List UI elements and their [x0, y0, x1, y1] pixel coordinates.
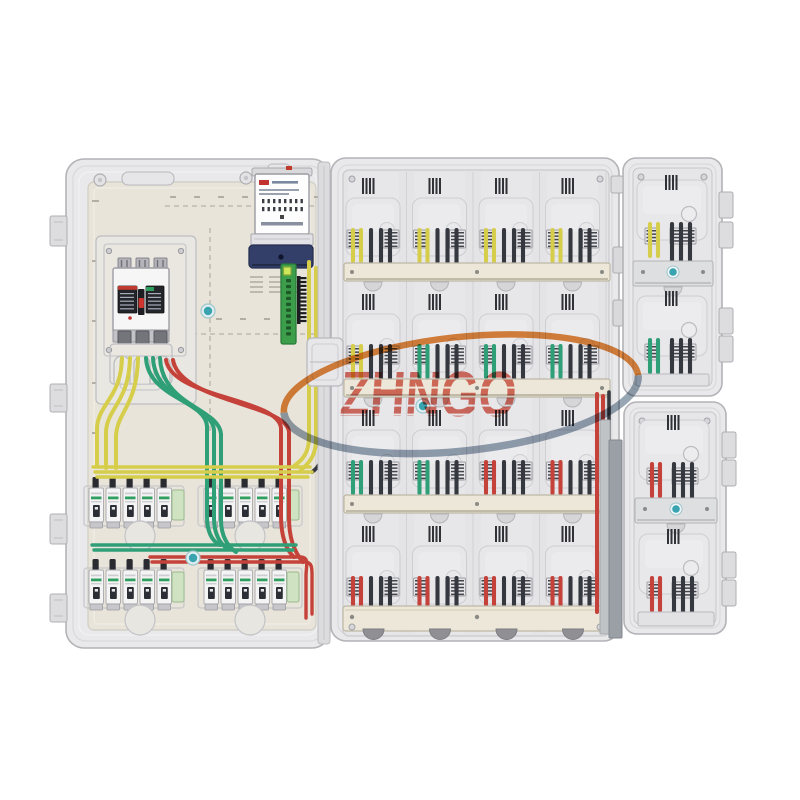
svg-text:ZHNGO: ZHNGO: [338, 358, 519, 430]
